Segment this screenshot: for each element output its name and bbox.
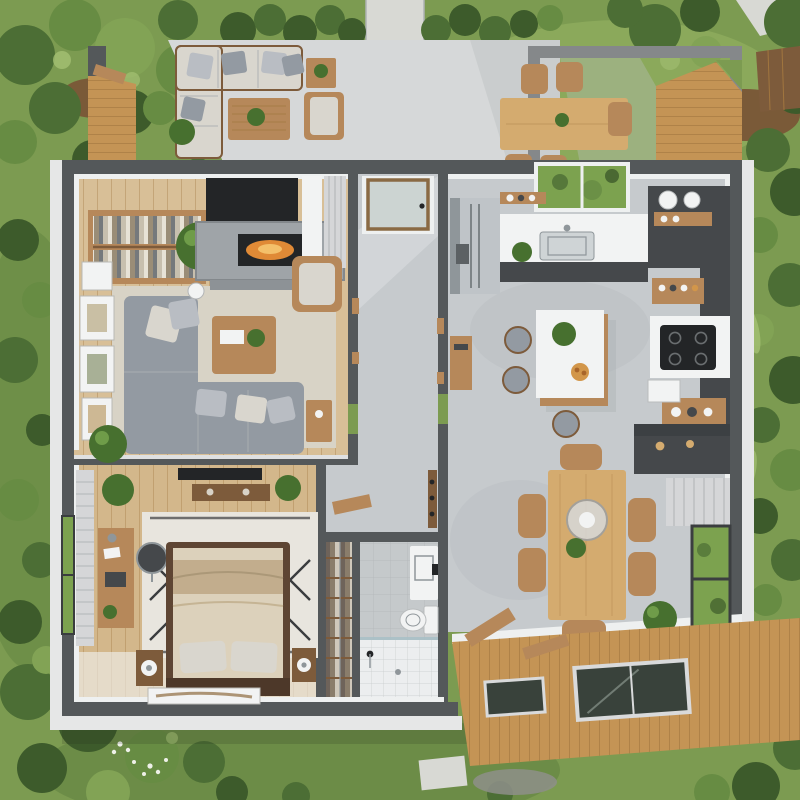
counter-plant: [512, 242, 532, 262]
skylight-window: [536, 164, 628, 210]
patio-coffee-table: [228, 98, 290, 140]
sofa-side-table: [306, 400, 332, 442]
living-window: [302, 176, 322, 264]
floor-lamp: [188, 283, 204, 299]
dining-sideboard: [634, 424, 730, 474]
patio-side-table: [306, 58, 336, 88]
floor-plan-render: [0, 0, 800, 800]
plates: [659, 191, 677, 209]
coat-hook: [437, 372, 444, 384]
bedroom-plant-right: [275, 475, 301, 501]
speaker-right: [292, 648, 316, 682]
dresser: [192, 484, 270, 501]
bedroom-plant-left: [102, 474, 134, 506]
speaker-left: [136, 650, 163, 686]
patio-armchair: [304, 92, 344, 140]
bed-pillow: [179, 640, 227, 673]
wall-right: [730, 160, 742, 642]
front-door: [362, 176, 434, 234]
wall-closet-bath: [352, 542, 360, 702]
dining-curtain: [666, 478, 730, 526]
living-coffee-table: [212, 316, 276, 374]
outer-band-left: [50, 160, 62, 716]
books-on-table: [220, 330, 244, 344]
dining-table: [548, 470, 626, 620]
kitchen-island: [536, 310, 616, 412]
pillow: [195, 389, 228, 418]
wall-hall-left: [348, 174, 358, 404]
island-top: [536, 310, 604, 398]
centerpiece: [555, 113, 569, 127]
bedroom-curtain: [76, 470, 94, 646]
foot-rug: [148, 688, 260, 704]
wall-top: [62, 160, 742, 174]
induction-cooktop: [660, 325, 716, 370]
island-plant: [552, 322, 576, 346]
appliance-box: [648, 380, 680, 402]
dining-table-plant: [566, 538, 586, 558]
wall-closet-bath-top: [316, 532, 448, 542]
lower-cabinets: [500, 262, 648, 282]
pillow: [168, 298, 200, 330]
pillow: [221, 50, 248, 75]
living-armchair: [292, 256, 342, 312]
bedroom-tv: [178, 468, 262, 480]
pillow: [186, 52, 214, 80]
door-handle: [419, 203, 424, 208]
floor-plan-svg: [0, 0, 800, 800]
deck-skylight-small: [485, 678, 545, 716]
outer-band-right: [742, 160, 754, 630]
kitchen-counter-top: [500, 214, 648, 282]
hall-sideboard: [450, 336, 472, 390]
desk: [98, 528, 134, 628]
fridge: [450, 198, 500, 294]
patio-wood-walkway: [88, 72, 136, 162]
desk-lamp: [108, 534, 117, 543]
water-dispenser: [456, 244, 469, 264]
patio-bush: [143, 91, 177, 125]
tv: [206, 178, 298, 222]
bedroom-window: [62, 516, 74, 634]
shower-glass: [360, 637, 438, 640]
bed: [166, 542, 290, 696]
pendant-lamp: [567, 500, 607, 540]
patio-potted-plant: [169, 119, 195, 145]
vanity-sink: [410, 546, 438, 600]
living-room: [80, 176, 346, 463]
wall-art-frames: [80, 262, 114, 440]
mudroom-coat-rack: [428, 470, 437, 528]
tall-cabinets: [648, 186, 730, 268]
faucet: [432, 564, 438, 575]
table-plant: [247, 108, 265, 126]
coat-hook: [437, 318, 444, 334]
drain: [395, 669, 401, 675]
fruit-bowl: [571, 363, 589, 381]
dining-window: [692, 526, 730, 632]
desk-plant: [103, 605, 117, 619]
spice-shelf: [652, 278, 704, 304]
stepping-stone: [419, 756, 468, 791]
living-curtain: [324, 176, 346, 268]
wall-bath-right: [438, 424, 448, 702]
deck-skylight-large: [574, 660, 689, 720]
coat-hook: [352, 298, 359, 314]
laptop: [105, 572, 126, 587]
coat-hook: [352, 352, 359, 364]
corner-plant: [89, 425, 127, 463]
folded-blanket: [173, 560, 283, 594]
plates: [684, 192, 700, 208]
outer-band-bottom: [50, 716, 462, 730]
open-shelves-left: [500, 192, 546, 204]
pillow: [281, 53, 305, 77]
gravel-patch: [473, 769, 557, 795]
faucet: [564, 225, 571, 232]
pillow: [234, 394, 267, 424]
bed-pillow: [230, 641, 278, 673]
wall-hall-right: [438, 174, 448, 394]
pillow: [180, 96, 206, 122]
table-plant: [247, 329, 265, 347]
cooktop-counter: [650, 316, 730, 378]
garden-fence: [756, 46, 800, 112]
